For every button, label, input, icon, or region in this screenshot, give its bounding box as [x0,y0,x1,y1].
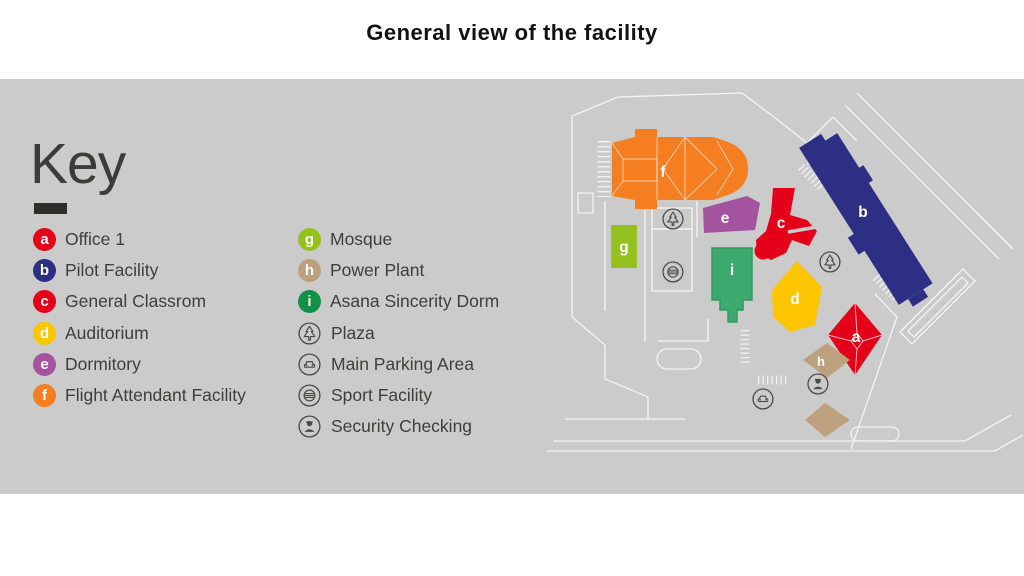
legend-item-general-classrom: c General Classrom [33,290,246,313]
plaza-tree-icon-map [663,209,683,229]
page-title: General view of the facility [0,20,1024,46]
badge-h-letter: h [305,259,314,282]
badge-a: a [33,228,56,251]
badge-h: h [298,259,321,282]
legend-item-pilot-facility: b Pilot Facility [33,259,246,282]
legend-column-1: a Office 1 b Pilot Facility c General Cl… [33,228,246,415]
facility-map-svg: f g e c b i d a [545,79,1024,494]
legend-item-power-plant: h Power Plant [298,259,499,282]
badge-i-letter: i [307,290,311,313]
legend-item-main-parking-area: Main Parking Area [298,353,499,376]
legend-item-flight-attendant-facility: f Flight Attendant Facility [33,384,246,407]
map-label-a: a [852,329,861,346]
building-h-annex [805,403,850,437]
badge-b-letter: b [40,259,49,282]
badge-e-letter: e [40,353,48,376]
car-icon [297,352,322,377]
security-guard-icon-map [808,374,828,394]
legend-label: Mosque [330,229,392,250]
legend-item-plaza: Plaza [298,322,499,345]
legend-item-sport-facility: Sport Facility [298,384,499,407]
legend-label: General Classrom [65,291,206,312]
parking-car-icon-map [753,389,773,409]
legend-item-auditorium: d Auditorium [33,322,246,345]
legend-label: Security Checking [331,416,472,437]
legend-label: Plaza [331,323,375,344]
map-label-e: e [721,210,730,227]
badge-g-letter: g [305,228,314,251]
building-c: c [755,188,818,260]
legend-item-asana-sincerity-dorm: i Asana Sincerity Dorm [298,290,499,313]
legend-label: Asana Sincerity Dorm [330,291,499,312]
building-e: e [703,196,760,233]
building-f: f [612,129,748,209]
map-label-c: c [777,215,786,232]
facility-map: f g e c b i d a [545,79,1024,494]
badge-a-letter: a [40,228,48,251]
legend-label: Main Parking Area [331,354,474,375]
building-g: g [611,225,637,268]
ball-icon [297,383,322,408]
legend-item-office-1: a Office 1 [33,228,246,251]
badge-d: d [33,322,56,345]
map-label-g: g [619,239,628,256]
key-heading: Key [30,136,125,193]
guard-icon [297,414,322,439]
legend-label: Power Plant [330,260,424,281]
map-label-b: b [858,204,867,221]
map-label-d: d [790,291,799,308]
legend-label: Dormitory [65,354,141,375]
key-underline-bar [34,203,67,214]
badge-i: i [298,290,321,313]
sport-facility-ball-icon-map [663,262,683,282]
legend-label: Office 1 [65,229,125,250]
badge-c: c [33,290,56,313]
badge-b: b [33,259,56,282]
badge-g: g [298,228,321,251]
map-label-h: h [817,354,825,369]
legend-item-security-checking: Security Checking [298,415,499,438]
tree-icon [297,321,322,346]
badge-c-letter: c [40,290,48,313]
map-label-i: i [730,262,734,279]
legend-item-dormitory: e Dormitory [33,353,246,376]
badge-f: f [33,384,56,407]
map-label-f: f [660,164,666,181]
legend-column-2: g Mosque h Power Plant i Asana Sincerity… [298,228,499,446]
building-i: i [712,248,752,322]
badge-f-letter: f [42,384,47,407]
legend-label: Flight Attendant Facility [65,385,246,406]
plaza-tree-icon-map-2 [820,252,840,272]
legend-label: Pilot Facility [65,260,158,281]
legend-item-mosque: g Mosque [298,228,499,251]
badge-e: e [33,353,56,376]
legend-label: Sport Facility [331,385,432,406]
badge-d-letter: d [40,322,49,345]
building-d: d [772,261,822,332]
legend-label: Auditorium [65,323,149,344]
